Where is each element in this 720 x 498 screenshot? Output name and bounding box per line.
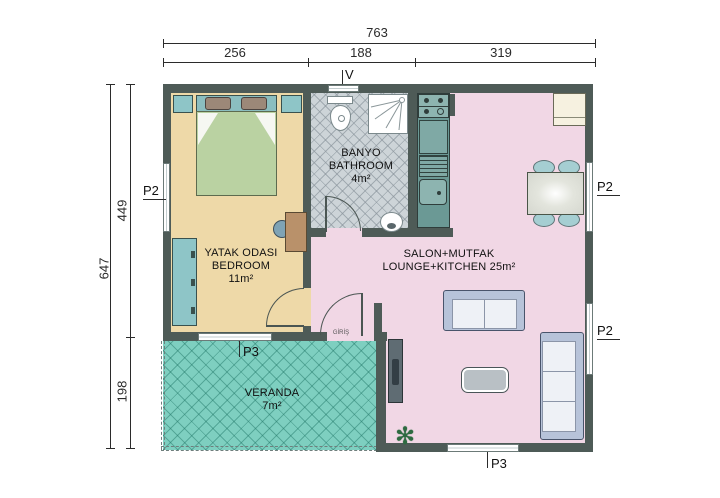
stove-divider (419, 106, 448, 107)
vent-label: V (345, 67, 354, 82)
kitchen-worktop (419, 120, 448, 154)
lounge-name-en: LOUNGE+KITCHEN 25m² (379, 261, 519, 274)
bedroom-label: YATAK ODASI BEDROOM 11m² (196, 247, 286, 286)
veranda-dashed-bottom-edge (161, 446, 377, 451)
dim-tick (415, 58, 416, 67)
dim-line-top-total (163, 43, 596, 44)
lounge-name-tr: SALON+MUTFAK (379, 248, 519, 261)
wardrobe (172, 238, 197, 326)
dining-table (527, 172, 584, 215)
p2-right-bottom-label: P2 (597, 323, 620, 340)
bed-fold-left (198, 113, 218, 145)
pillow-left (205, 97, 231, 110)
wardrobe-knob (191, 279, 195, 286)
stove (418, 94, 449, 118)
dim-tick (595, 39, 596, 48)
bathroom-sink (380, 212, 403, 232)
sofa-cushion (542, 401, 576, 432)
wardrobe-knob (191, 251, 195, 258)
kitchen-sink-drain (437, 191, 441, 195)
sofa-cushion (452, 299, 485, 329)
bathroom-sink-drain (387, 223, 396, 229)
dim-left-seg-2: 198 (115, 372, 130, 412)
dim-tick (163, 39, 164, 48)
nightstand-left (173, 95, 193, 113)
bathroom-door-leaf (325, 196, 327, 232)
window-p2-right-top (586, 162, 593, 232)
dim-tick (308, 58, 309, 67)
wall-kitchen-stub (450, 94, 455, 116)
p3-bedroom-label: P3 (243, 344, 259, 359)
sofa-three-seat (540, 332, 584, 440)
sofa-two-seat (443, 290, 525, 331)
window-p3-lounge (447, 444, 519, 452)
veranda-area: 7m² (227, 400, 317, 413)
p3-bedroom-tick (239, 341, 240, 357)
bedroom-name-en: BEDROOM (196, 260, 286, 273)
lounge-label: SALON+MUTFAK LOUNGE+KITCHEN 25m² (379, 248, 519, 274)
dim-top-seg-2: 188 (331, 45, 391, 60)
wall-entry-stub (374, 303, 382, 341)
dim-line-left-segments (130, 84, 131, 448)
bedroom-door-leaf (266, 325, 304, 327)
p3-lounge-tick (487, 452, 488, 468)
tv-screen (392, 359, 399, 385)
bathroom-area: 4m² (316, 173, 406, 186)
veranda-name: VERANDA (227, 387, 317, 400)
toilet-tank (327, 96, 353, 104)
vent-tick (342, 70, 343, 84)
window-p2-right-bottom (586, 303, 593, 375)
entrance-door-leaf (361, 293, 363, 336)
bed-fold-right (255, 113, 275, 145)
dresser (285, 212, 307, 252)
coffee-table (462, 368, 508, 392)
vent-window (328, 85, 359, 92)
wall-bedroom-partition-upper (303, 92, 311, 288)
sofa-cushion (542, 341, 576, 372)
wall-veranda-lounge (376, 341, 386, 452)
sofa-cushion (542, 371, 576, 402)
bathroom-label: BANYO BATHROOM 4m² (316, 147, 406, 186)
dim-tick (106, 448, 115, 449)
nightstand-right (281, 95, 302, 113)
wall-bathroom-kitchen (408, 92, 417, 237)
sofa-cushion (484, 299, 517, 329)
bathroom-name-tr: BANYO (316, 147, 406, 160)
dim-tick (595, 58, 596, 67)
dim-line-top-segments (163, 62, 596, 63)
dim-tick (126, 337, 135, 338)
bedroom-name-tr: YATAK ODASI (196, 247, 286, 260)
stove-burner (437, 108, 444, 115)
veranda-dashed-left-edge (161, 341, 165, 450)
wall-right (585, 84, 593, 452)
p3-lounge-label: P3 (491, 456, 507, 471)
dim-line-left-total (110, 84, 111, 448)
cabinet (553, 93, 586, 126)
toilet-flush (338, 115, 345, 122)
plant: ✻ (392, 424, 418, 450)
stove-burner (424, 98, 429, 103)
dim-top-seg-1: 256 (205, 45, 265, 60)
wardrobe-knob (191, 307, 195, 314)
stove-burner (424, 109, 429, 114)
cabinet-shelf-line (554, 117, 585, 118)
shower-spray (369, 95, 407, 133)
veranda-label: VERANDA 7m² (227, 387, 317, 413)
bathroom-name-en: BATHROOM (316, 160, 406, 173)
dim-tick (126, 84, 135, 85)
window-p3-bedroom (198, 333, 272, 341)
wall-top (163, 84, 593, 93)
floor-plan: ✻ GİRİŞ YATAK ODASI BEDROOM 11m² BANYO B… (0, 0, 720, 498)
stove-burner (438, 98, 443, 103)
drainer (419, 155, 448, 177)
bed (196, 111, 277, 196)
p2-right-top-label: P2 (597, 179, 620, 196)
dim-top-seg-3: 319 (471, 45, 531, 60)
p2-left-label: P2 (143, 183, 166, 200)
pillow-right (241, 97, 267, 110)
wall-bathroom-bottom-left (311, 228, 326, 237)
dim-tick (106, 84, 115, 85)
entrance-label: GİRİŞ (327, 330, 355, 336)
kitchen-sink (419, 179, 447, 205)
dim-tick (126, 448, 135, 449)
dim-top-total: 763 (347, 25, 407, 40)
tv-unit (388, 339, 403, 403)
dim-left-seg-1: 449 (115, 191, 130, 231)
shower (368, 94, 408, 134)
dim-tick (163, 58, 164, 67)
bedroom-area: 11m² (196, 273, 286, 286)
